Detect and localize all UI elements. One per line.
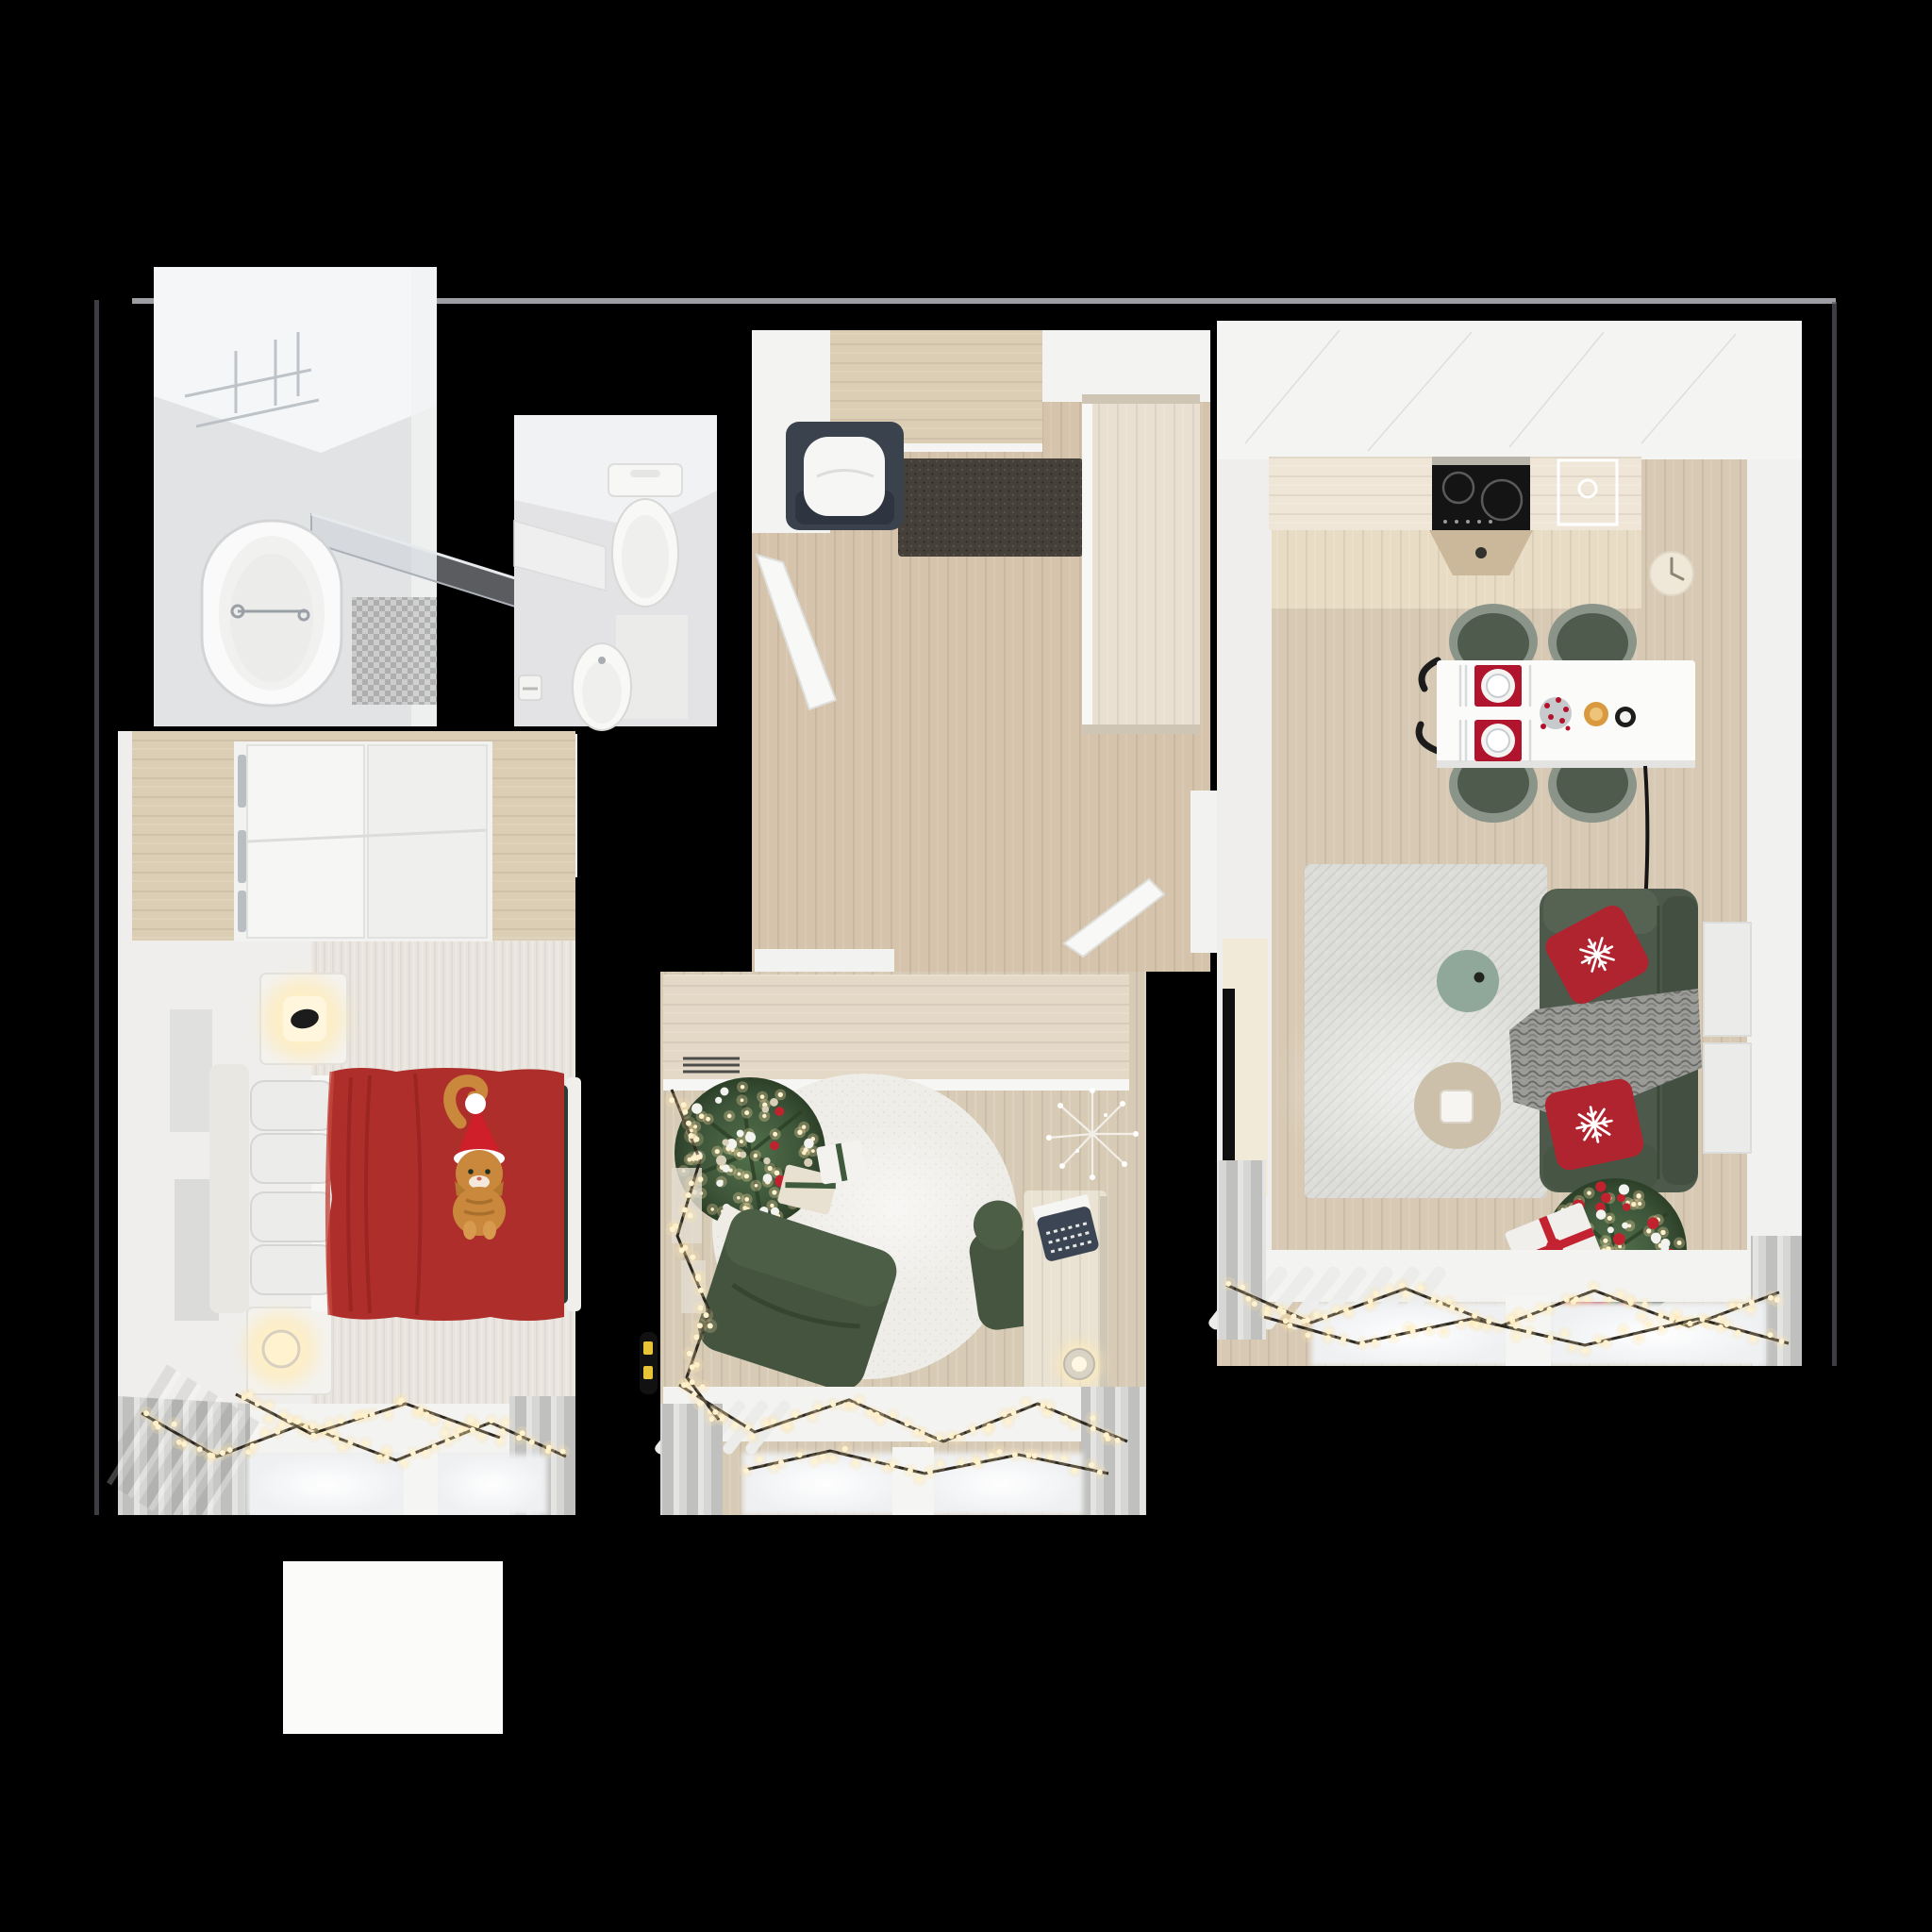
placemat-bottom — [1474, 720, 1522, 761]
living-right-wall-strip — [1747, 459, 1802, 1252]
room-wc — [514, 415, 717, 730]
room-kitchen-living — [1207, 321, 1802, 1366]
balcony-slab — [283, 1561, 503, 1734]
cat-body — [453, 1187, 506, 1236]
induction-cooktop — [1432, 457, 1530, 530]
wardrobe-door-right — [368, 745, 487, 938]
wardrobe-hinges — [238, 755, 246, 932]
wall-mask-bottom — [0, 1515, 1217, 1561]
hall-wardrobe-cabinet — [1082, 394, 1200, 734]
wall-clock — [1650, 552, 1693, 595]
bidet — [573, 643, 631, 730]
side-table-beige — [1414, 1062, 1501, 1149]
bedroom-wall-art-small — [170, 1009, 212, 1132]
bedroom-window-right — [436, 1455, 547, 1515]
outer-wall-right-edge — [1832, 302, 1837, 1370]
bedroom-wardrobe — [234, 741, 492, 941]
sideboard — [663, 974, 1129, 1091]
tv-screen-edge — [1223, 989, 1235, 1174]
room-hallway — [752, 330, 1217, 974]
room-kids — [640, 972, 1146, 1515]
doorway-to-kids-room — [755, 949, 894, 974]
tiled-shower-mat — [352, 597, 437, 705]
bathtub — [202, 521, 341, 706]
nightstand-top — [255, 970, 353, 1068]
tv-panel — [1223, 939, 1268, 1196]
wall-frame-upper — [1704, 923, 1751, 1036]
hall-wall-right — [1042, 330, 1210, 402]
headboard — [209, 1064, 249, 1313]
room-bedroom — [97, 731, 581, 1541]
kids-desk — [1024, 1191, 1108, 1398]
paper-holder — [519, 675, 541, 700]
coffee-table-sage — [1437, 950, 1499, 1012]
toilet — [608, 464, 682, 607]
floor-plan-canvas — [0, 0, 1932, 1932]
wall-device — [640, 1332, 658, 1394]
round-lamp — [263, 1331, 299, 1367]
placemat-top — [1474, 665, 1522, 707]
floor-plan-svg — [0, 0, 1932, 1932]
wall-frame-lower — [1704, 1043, 1751, 1153]
bed — [209, 1064, 581, 1321]
nightstand-bottom — [238, 1306, 332, 1394]
kitchen-top-wall — [1217, 321, 1802, 459]
wall-mask-bottom-right — [1217, 1366, 1932, 1564]
outer-wall-left-edge — [94, 300, 99, 1517]
bed-frame-edge — [566, 1077, 581, 1311]
desk-cup — [1053, 1338, 1106, 1391]
entry-bench — [786, 422, 904, 530]
